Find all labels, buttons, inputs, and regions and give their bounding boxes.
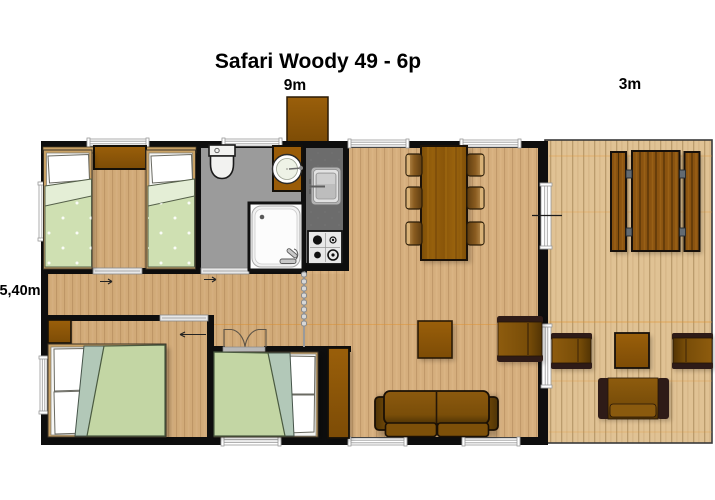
svg-text:9m: 9m [284, 77, 306, 94]
svg-text:5,40m: 5,40m [0, 283, 41, 299]
svg-text:3m: 3m [619, 76, 641, 93]
svg-text:Safari Woody 49 - 6p: Safari Woody 49 - 6p [215, 50, 421, 73]
